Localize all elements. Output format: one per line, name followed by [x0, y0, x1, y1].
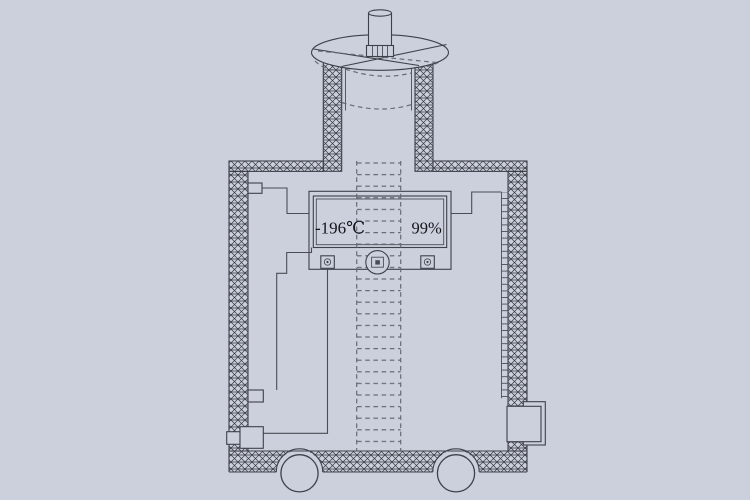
- cap-body: [369, 13, 392, 46]
- level-gauge-strip: [502, 192, 509, 398]
- wheel-left: [281, 455, 318, 492]
- fill-port-cap: [367, 10, 394, 57]
- cap-top: [369, 10, 392, 16]
- cap-hub: [367, 46, 394, 57]
- screw-dot-right: [426, 261, 428, 263]
- bottom-wall: [229, 451, 527, 472]
- neck-wall-right: [415, 58, 433, 171]
- neck-wall-left: [323, 60, 341, 171]
- screw-dot-left: [326, 261, 328, 263]
- gauge-strip-ticks: [502, 192, 509, 398]
- top-wall-right: [433, 161, 527, 171]
- bottom-left-box: [240, 427, 263, 449]
- top-wall-left: [229, 161, 323, 171]
- cryogenic-tank-drawing: -196℃ 99%: [0, 0, 750, 500]
- temperature-sensor: [248, 183, 262, 193]
- side-wall-left: [229, 171, 248, 451]
- temperature-readout: -196℃: [315, 219, 365, 238]
- shaft-key-dot: [375, 260, 380, 264]
- side-wall-right-upper: [508, 171, 527, 406]
- left-port-tab: [227, 432, 240, 445]
- level-readout: 99%: [412, 219, 443, 238]
- column-rungs: [357, 162, 401, 451]
- mid-sensor: [248, 390, 263, 402]
- drawing-canvas: -196℃ 99%: [0, 0, 750, 500]
- wheel-right: [437, 455, 474, 492]
- inner-column: [357, 161, 401, 451]
- right-valve-box: [507, 406, 541, 441]
